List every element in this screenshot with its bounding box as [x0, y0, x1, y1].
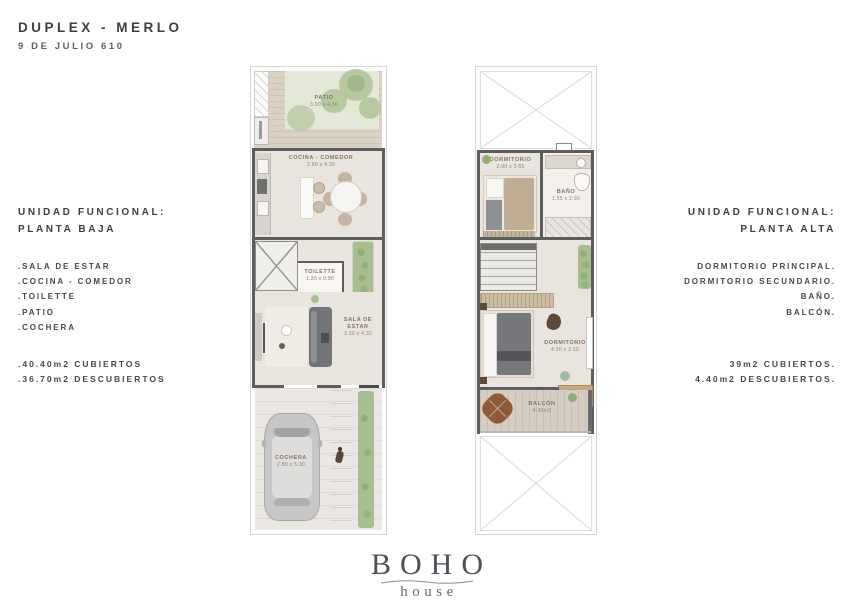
car-mirror — [262, 440, 266, 447]
left-info-heading: UNIDAD FUNCIONAL: PLANTA BAJA — [18, 204, 228, 238]
planter-icon — [578, 245, 591, 289]
plant-icon — [568, 393, 577, 402]
wardrobe-icon — [480, 293, 554, 308]
nightstand-icon — [480, 377, 487, 384]
stool-icon — [313, 182, 325, 194]
sink-icon — [576, 158, 586, 168]
kitchen-sink-icon — [257, 159, 269, 174]
list-item: .SALA DE ESTAR — [18, 259, 228, 274]
list-item: .TOILETTE — [18, 289, 228, 304]
stair-landing — [481, 244, 536, 250]
hedge-icon — [358, 391, 374, 528]
rug-icon — [265, 307, 307, 367]
kitchen-counter-icon — [255, 153, 271, 235]
patio-service-strip — [254, 71, 269, 117]
kitchen-island-icon — [300, 177, 314, 219]
car-mirror — [318, 440, 322, 447]
right-info-block: UNIDAD FUNCIONAL: PLANTA ALTA DORMITORIO… — [616, 204, 836, 320]
room-label-cocina: COCINA - COMEDOR 2.90 x 4.30 — [271, 155, 371, 169]
blanket — [497, 313, 531, 375]
person-icon — [335, 447, 344, 465]
logo-subtext: house — [0, 584, 854, 601]
stairs-icon — [255, 241, 298, 291]
oven-icon — [257, 179, 267, 194]
plan-planta-baja: PATIO 3.00 x 4.30 COCINA - COMEDOR 2.90 … — [250, 66, 387, 535]
chair-icon — [338, 213, 352, 226]
right-info-items: DORMITORIO PRINCIPAL. DORMITORIO SECUNDA… — [616, 259, 836, 320]
stairs-icon — [480, 243, 537, 291]
bed-throw — [497, 351, 531, 361]
nightstand-icon — [480, 303, 487, 310]
tree-icon — [359, 97, 381, 119]
sofa-cushions — [311, 311, 317, 363]
list-item: BALCÓN. — [616, 305, 836, 320]
wall — [382, 148, 385, 388]
void-cross-top — [480, 71, 592, 149]
laundry-unit-icon — [254, 117, 269, 145]
left-info-block: UNIDAD FUNCIONAL: PLANTA BAJA .SALA DE E… — [18, 204, 228, 335]
tv-icon — [263, 323, 265, 353]
plant-icon — [560, 371, 570, 381]
list-item: DORMITORIO SECUNDARIO. — [616, 274, 836, 289]
room-label-sala: SALA DE ESTAR 3.30 x 4.30 — [335, 317, 381, 338]
brand-logo: BOHO house — [0, 548, 854, 601]
balcony-edge — [480, 431, 591, 433]
car-windshield — [274, 428, 310, 437]
room-label-patio: PATIO 3.00 x 4.30 — [289, 95, 359, 109]
pillow-icon — [483, 313, 497, 377]
pillow-icon — [486, 178, 504, 198]
list-item: .COCINA - COMEDOR — [18, 274, 228, 289]
floorplan-sheet: DUPLEX - MERLO 9 DE JULIO 610 UNIDAD FUN… — [0, 0, 854, 603]
list-item: BAÑO. — [616, 289, 836, 304]
room-label-dormitorio-principal: DORMITORIO 4.30 x 3.50 — [540, 340, 590, 354]
tv-console-icon — [255, 313, 262, 361]
laundry-unit-detail — [259, 121, 262, 139]
bed-icon — [483, 175, 537, 233]
dining-table-icon — [330, 181, 362, 213]
void-cross-bottom — [480, 436, 592, 531]
right-info-heading: UNIDAD FUNCIONAL: PLANTA ALTA — [616, 204, 836, 238]
coffee-table-icon — [281, 325, 292, 336]
left-info-items: .SALA DE ESTAR .COCINA - COMEDOR .TOILET… — [18, 259, 228, 335]
shower-icon — [545, 217, 591, 239]
sofa-icon — [309, 307, 332, 367]
room-label-balcon: BALCÓN 4.40m2 — [518, 401, 566, 415]
decor-icon — [279, 343, 285, 349]
car-rear-window — [274, 498, 310, 506]
list-item: .COCHERA — [18, 320, 228, 335]
person-body — [335, 450, 345, 463]
list-item: DORMITORIO PRINCIPAL. — [616, 259, 836, 274]
room-label-toilette: TOILETTE 1.30 x 0.90 — [298, 269, 342, 283]
toilette-room: TOILETTE 1.30 x 0.90 — [298, 261, 344, 294]
planter-icon — [352, 241, 374, 295]
logo-wordmark: BOHO — [0, 548, 854, 582]
plant-icon — [482, 155, 491, 164]
room-label-bano: BAÑO 1.55 x 2.90 — [543, 189, 589, 203]
tree-icon — [347, 75, 365, 92]
bed-throw — [486, 200, 502, 230]
window — [586, 317, 593, 369]
right-areas: 39m2 CUBIERTOS. 4.40m2 DESCUBIERTOS. — [616, 357, 836, 387]
room-label-cochera: COCHERA 2.80 x 5.30 — [264, 455, 318, 469]
sofa-throw — [321, 333, 329, 343]
list-item: .PATIO — [18, 305, 228, 320]
blanket — [504, 178, 534, 230]
plan-planta-alta: DORMITORIO 2.90 x 2.65 BAÑO 1.55 x 2.90 — [475, 66, 597, 535]
bed-icon — [480, 310, 534, 378]
fridge-icon — [257, 201, 269, 216]
page-title: DUPLEX - MERLO — [18, 20, 183, 35]
page-subtitle: 9 DE JULIO 610 — [18, 41, 125, 52]
balcony-railing — [588, 390, 592, 434]
vanity-icon — [545, 155, 591, 169]
plant-icon — [311, 295, 319, 303]
left-areas: .40.40m2 CUBIERTOS .36.70m2 DESCUBIERTOS — [18, 357, 166, 387]
